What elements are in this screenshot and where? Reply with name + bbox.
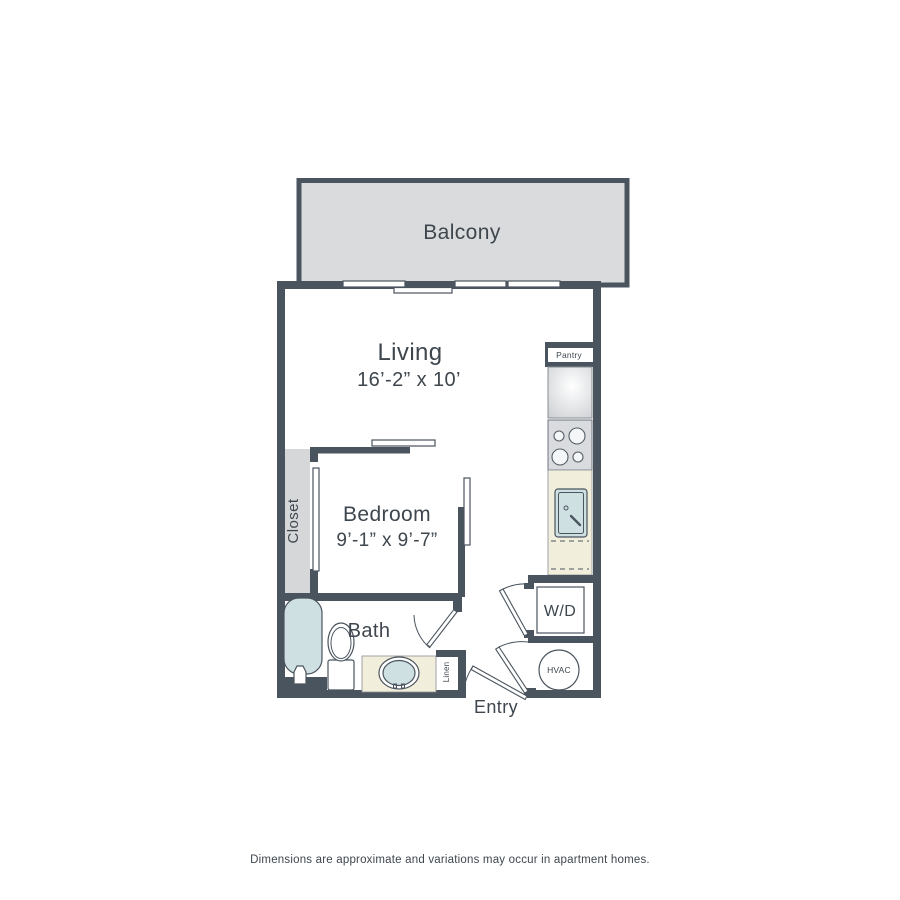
- burner-large: [569, 428, 585, 444]
- burner-large: [552, 449, 568, 465]
- living-dimensions: 16’-2” x 10’: [357, 369, 461, 391]
- exterior-wall-bottom-right: [527, 690, 601, 698]
- living-room: Living 16’-2” x 10’: [357, 339, 461, 391]
- laundry-closet: W/D: [500, 575, 602, 638]
- entry: Entry: [463, 666, 527, 717]
- closet-wall-stub-bottom: [310, 569, 318, 595]
- hvac-wall-top: [528, 636, 601, 643]
- refrigerator: [548, 367, 592, 418]
- disclaimer-text: Dimensions are approximate and variation…: [250, 854, 650, 866]
- bath-label: Bath: [348, 620, 391, 642]
- bedroom-wall-top: [317, 447, 410, 454]
- window-panel: [508, 281, 560, 287]
- toilet-tank: [328, 660, 354, 690]
- living-label: Living: [377, 339, 442, 366]
- burner-small: [573, 452, 583, 462]
- closet-sliding-door: [313, 468, 319, 571]
- bedroom-closet: Closet: [285, 447, 319, 595]
- kitchen: Pantry: [545, 342, 593, 575]
- closet-label: Closet: [285, 498, 302, 543]
- pantry-wall-top: [545, 342, 593, 348]
- kitchen-sink: [555, 489, 587, 537]
- bedroom-dimensions: 9’-1” x 9’-7”: [336, 530, 437, 551]
- closet-wall-stub-top: [310, 447, 318, 462]
- window-panel: [455, 281, 506, 287]
- balcony-label: Balcony: [423, 221, 501, 244]
- bedroom: Bedroom 9’-1” x 9’-7”: [317, 440, 470, 597]
- linen-wall-right: [458, 650, 466, 698]
- laundry-door-leaf: [500, 589, 529, 636]
- sliding-glass-panel: [394, 288, 452, 294]
- hvac-label: HVAC: [547, 665, 571, 675]
- bathroom: Bath: [277, 593, 462, 698]
- bedroom-label: Bedroom: [343, 503, 431, 526]
- pantry-wall-bottom: [545, 362, 593, 367]
- washer-dryer-label: W/D: [544, 603, 576, 620]
- hvac-door-arc: [499, 642, 528, 647]
- floor-plan: Balcony Living 16’-2” x 10’ Pantry: [0, 0, 900, 900]
- burner-small: [554, 431, 564, 441]
- bathtub: [284, 598, 322, 674]
- entry-label: Entry: [474, 697, 518, 717]
- vanity-sink-basin: [383, 661, 415, 686]
- pantry-label: Pantry: [556, 350, 582, 360]
- tub-faucet: [294, 666, 306, 684]
- exterior-wall-right: [593, 281, 601, 698]
- balcony: Balcony: [299, 181, 627, 286]
- bath-door-leaf: [427, 610, 457, 647]
- linen-label: Linen: [442, 662, 451, 683]
- bedroom-sliding-door-east: [464, 478, 470, 545]
- window-panel: [343, 281, 405, 287]
- bath-door-jamb: [453, 593, 462, 612]
- bedroom-sliding-door-top: [372, 440, 435, 446]
- laundry-wall-top: [528, 575, 601, 583]
